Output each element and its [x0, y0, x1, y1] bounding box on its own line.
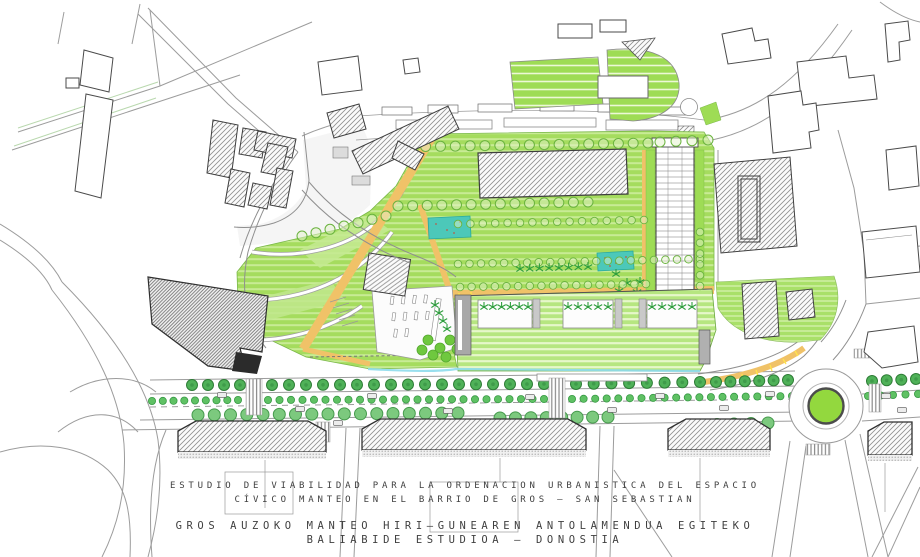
tree-icon — [170, 397, 177, 404]
tree-icon — [454, 379, 465, 390]
tree-icon — [504, 219, 512, 227]
tree-icon — [506, 396, 513, 403]
tree-icon — [287, 396, 294, 403]
tree-icon — [902, 391, 909, 398]
tree-icon — [696, 282, 704, 290]
tree-icon — [483, 396, 490, 403]
tree-icon — [640, 216, 648, 224]
tree-icon — [420, 379, 431, 390]
tree-icon — [615, 217, 623, 225]
tree-icon — [615, 395, 622, 402]
tree-icon — [234, 396, 241, 403]
tree-icon — [599, 139, 609, 149]
tree-icon — [403, 407, 415, 419]
tree-icon — [235, 380, 246, 391]
tree-icon — [604, 257, 612, 265]
tree-icon — [454, 260, 462, 268]
tree-icon — [208, 409, 220, 421]
tree-icon — [580, 395, 587, 402]
tree-icon — [696, 394, 703, 401]
tree-icon — [554, 198, 564, 208]
tree-icon — [529, 219, 537, 227]
tree-icon — [264, 396, 271, 403]
tree-icon — [306, 408, 318, 420]
tree-icon — [514, 282, 522, 290]
tree-icon — [655, 137, 665, 147]
field-pavilion — [598, 76, 648, 98]
tree-icon — [541, 218, 549, 226]
tree-icon — [495, 140, 505, 150]
tree-icon — [510, 140, 520, 150]
tree-icon — [213, 397, 220, 404]
tree-icon — [603, 217, 611, 225]
tree-icon — [192, 409, 204, 421]
tree-icon — [696, 271, 704, 279]
tree-icon — [466, 200, 476, 210]
tree-icon — [719, 393, 726, 400]
tree-icon — [512, 259, 520, 267]
tree-icon — [549, 282, 557, 290]
caption-es-line2: CÍVICO MANTEO EN EL BARRIO DE GROS — SAN… — [40, 494, 890, 508]
crosswalk — [549, 378, 565, 418]
tree-icon — [584, 281, 592, 289]
tree-icon — [569, 258, 577, 266]
existing-hall-hatched — [478, 149, 628, 198]
tree-icon — [301, 379, 312, 390]
tree-icon — [628, 217, 636, 225]
tree-icon — [914, 390, 920, 397]
caption-es-line1: ESTUDIO DE VIABILIDAD PARA LA ORDENACION… — [40, 480, 890, 494]
tree-icon — [659, 377, 670, 388]
crosswalk — [246, 379, 262, 415]
tree-icon — [642, 280, 650, 288]
tree-icon — [587, 411, 599, 423]
tree-icon — [524, 140, 534, 150]
tree-icon — [452, 200, 462, 210]
tree-icon — [619, 281, 627, 289]
tree-icon — [322, 396, 329, 403]
tree-icon — [538, 282, 546, 290]
tree-icon — [491, 219, 499, 227]
tree-icon — [768, 375, 779, 386]
title-block-spanish: ESTUDIO DE VIABILIDAD PARA LA ORDENACION… — [40, 480, 890, 507]
tree-icon — [725, 376, 736, 387]
tree-icon — [422, 200, 432, 210]
tree-icon — [696, 250, 704, 258]
tree-icon — [739, 376, 750, 387]
tree-icon — [616, 257, 624, 265]
tree-icon — [436, 141, 446, 151]
tree-icon — [707, 394, 714, 401]
tree-icon — [448, 396, 455, 403]
tree-icon — [731, 393, 738, 400]
tree-icon — [425, 396, 432, 403]
tree-icon — [510, 199, 520, 209]
tree-icon — [456, 283, 464, 291]
tree-icon — [628, 138, 638, 148]
tree-icon — [202, 397, 209, 404]
crosswalk — [806, 444, 830, 455]
tree-icon — [437, 396, 444, 403]
tree-icon — [454, 220, 462, 228]
tree-icon — [203, 380, 214, 391]
tree-icon — [539, 140, 549, 150]
tree-icon — [896, 374, 907, 385]
tree-icon — [591, 217, 599, 225]
tree-icon — [525, 198, 535, 208]
tree-icon — [471, 396, 478, 403]
tree-icon — [592, 395, 599, 402]
tree-icon — [783, 375, 794, 386]
tree-icon — [299, 396, 306, 403]
tree-icon — [568, 197, 578, 207]
tree-icon — [881, 375, 892, 386]
tree-icon — [911, 374, 920, 385]
tree-icon — [553, 218, 561, 226]
tree-icon — [754, 393, 761, 400]
roundabout — [789, 349, 881, 455]
tree-icon — [311, 228, 321, 238]
courtyard — [478, 300, 532, 328]
roundabout-island — [809, 389, 844, 424]
tree-icon — [391, 396, 398, 403]
tree-icon — [381, 211, 391, 221]
tree-icon — [333, 396, 340, 403]
tree-icon — [479, 220, 487, 228]
tree-icon — [754, 375, 765, 386]
tree-icon — [468, 283, 476, 291]
tree-icon — [338, 408, 350, 420]
tree-icon — [187, 380, 198, 391]
tree-icon — [403, 379, 414, 390]
tree-icon — [711, 377, 722, 388]
tree-icon — [371, 408, 383, 420]
tree-icon — [267, 380, 278, 391]
tree-icon — [516, 219, 524, 227]
site-plan-map — [0, 0, 920, 557]
tree-icon — [662, 256, 670, 264]
tree-icon — [539, 198, 549, 208]
tree-icon — [631, 280, 639, 288]
tree-icon — [777, 393, 784, 400]
tree-icon — [643, 138, 653, 148]
tree-icon — [638, 395, 645, 402]
tree-icon — [677, 377, 688, 388]
tree-icon — [471, 379, 482, 390]
tree-icon — [703, 135, 713, 145]
tree-icon — [339, 221, 349, 231]
tree-icon — [452, 407, 464, 419]
tree-icon — [297, 231, 307, 241]
tree-icon — [420, 407, 432, 419]
tree-icon — [325, 224, 335, 234]
tree-icon — [671, 136, 681, 146]
tree-icon — [696, 228, 704, 236]
tree-icon — [480, 141, 490, 151]
tree-icon — [465, 141, 475, 151]
tree-icon — [489, 260, 497, 268]
tree-icon — [503, 283, 511, 291]
tree-icon — [181, 397, 188, 404]
tree-icon — [684, 394, 691, 401]
tree-icon — [526, 282, 534, 290]
tree-icon — [673, 256, 681, 264]
tree-icon — [685, 255, 693, 263]
tree-icon — [505, 379, 516, 390]
tree-icon — [318, 379, 329, 390]
tree-icon — [225, 409, 237, 421]
tree-icon — [477, 260, 485, 268]
tree-icon — [573, 281, 581, 289]
tree-icon — [488, 379, 499, 390]
tree-icon — [494, 396, 501, 403]
tree-icon — [596, 281, 604, 289]
tree-icon — [481, 199, 491, 209]
tree-icon — [437, 379, 448, 390]
tree-icon — [191, 397, 198, 404]
tree-icon — [353, 218, 363, 228]
tree-icon — [546, 258, 554, 266]
tree-icon — [568, 395, 575, 402]
tree-icon — [639, 256, 647, 264]
tree-icon — [352, 379, 363, 390]
tree-icon — [673, 394, 680, 401]
tree-icon — [467, 220, 475, 228]
tree-icon — [500, 259, 508, 267]
stair-core — [699, 330, 710, 364]
tree-icon — [355, 408, 367, 420]
tree-icon — [369, 379, 380, 390]
tree-icon — [159, 397, 166, 404]
tree-icon — [310, 396, 317, 403]
tree-icon — [584, 139, 594, 149]
tree-icon — [402, 396, 409, 403]
tree-icon — [569, 139, 579, 149]
tree-icon — [695, 377, 706, 388]
tree-icon — [367, 214, 377, 224]
tree-icon — [561, 282, 569, 290]
tree-icon — [414, 396, 421, 403]
crosswalk — [869, 384, 881, 412]
tree-icon — [742, 393, 749, 400]
tree-icon — [408, 201, 418, 211]
caption-eu-line2: BALIABIDE ESTUDIOA — DONOSTIA — [40, 533, 890, 547]
tree-icon — [578, 218, 586, 226]
tree-icon — [593, 257, 601, 265]
tree-icon — [276, 396, 283, 403]
tree-icon — [650, 256, 658, 264]
tree-icon — [517, 396, 524, 403]
tree-icon — [148, 397, 155, 404]
tree-icon — [602, 411, 614, 423]
tree-icon — [466, 260, 474, 268]
tree-icon — [607, 281, 615, 289]
caption-eu-line1: GROS AUZOKO MANTEO HIRI—GUNEAREN ANTOLAM… — [40, 519, 890, 533]
tree-icon — [437, 200, 447, 210]
tree-icon — [387, 408, 399, 420]
tree-icon — [613, 139, 623, 149]
title-block-basque: GROS AUZOKO MANTEO HIRI—GUNEAREN ANTOLAM… — [40, 519, 890, 547]
tree-icon — [379, 396, 386, 403]
stair-core — [455, 295, 471, 355]
sports-fields — [510, 38, 679, 121]
tree-icon — [480, 283, 488, 291]
tree-icon — [522, 379, 533, 390]
tree-icon — [393, 201, 403, 211]
tree-icon — [687, 136, 697, 146]
tree-icon — [495, 199, 505, 209]
tree-icon — [603, 395, 610, 402]
tree-icon — [345, 396, 352, 403]
dark-annex — [232, 352, 262, 374]
east-slope — [716, 276, 838, 342]
tree-icon — [566, 218, 574, 226]
tree-icon — [335, 379, 346, 390]
site-plan-page: ESTUDIO DE VIABILIDAD PARA LA ORDENACION… — [0, 0, 920, 557]
tree-icon — [491, 283, 499, 291]
tree-icon — [273, 408, 285, 420]
tree-icon — [583, 197, 593, 207]
tree-icon — [696, 261, 704, 269]
tree-icon — [219, 380, 230, 391]
tree-icon — [460, 396, 467, 403]
tree-icon — [322, 408, 334, 420]
tree-icon — [284, 379, 295, 390]
plaza-pavilion-hatched — [363, 253, 410, 296]
tree-icon — [540, 395, 547, 402]
tree-icon — [627, 257, 635, 265]
tree-icon — [535, 259, 543, 267]
tree-icon — [386, 379, 397, 390]
tree-icon — [696, 239, 704, 247]
tree-icon — [554, 139, 564, 149]
tree-icon — [450, 141, 460, 151]
tree-icon — [626, 395, 633, 402]
tree-icon — [356, 396, 363, 403]
